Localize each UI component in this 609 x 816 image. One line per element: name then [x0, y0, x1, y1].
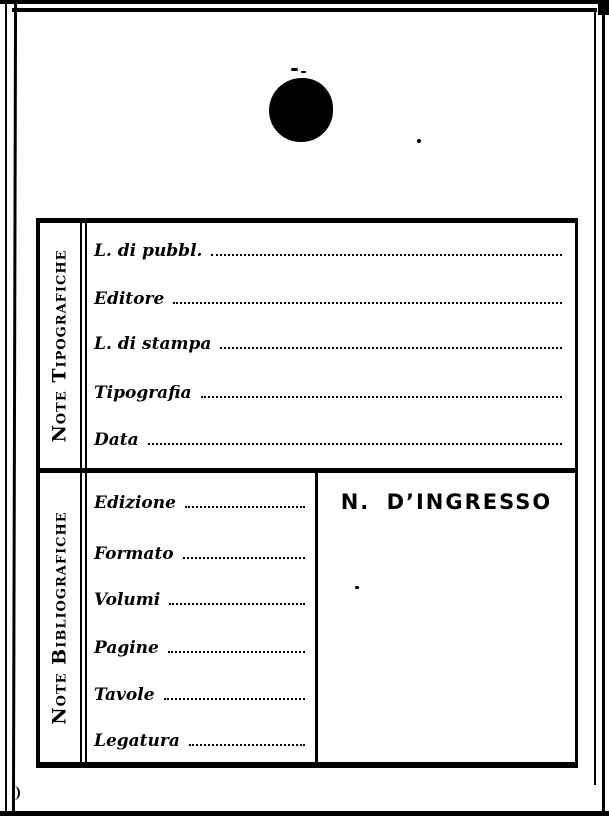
ink-speck — [291, 68, 298, 71]
field-row: Tavole — [94, 685, 305, 705]
field-label: Tavole — [94, 685, 155, 705]
ingresso-column-rule — [315, 473, 318, 762]
page-right-outer-line — [602, 0, 605, 816]
field-label: Legatura — [94, 731, 180, 751]
page-inner-top-border — [12, 8, 597, 12]
section-divider-rule — [36, 468, 578, 473]
field-row: L. di pubbl. — [94, 241, 562, 261]
label-strip-double-rule — [80, 223, 82, 762]
field-label: Pagine — [94, 638, 159, 658]
fill-in-line — [201, 396, 562, 398]
card-top-border — [36, 218, 578, 223]
fill-in-line — [211, 254, 562, 256]
field-row: Formato — [94, 544, 305, 564]
page-left-outer-line — [5, 0, 7, 816]
fill-in-line — [148, 443, 562, 445]
field-row: L. di stampa — [94, 334, 562, 354]
fill-in-line — [220, 347, 562, 349]
section-title-note-bibliografiche: Note Bibliografiche — [40, 473, 80, 762]
field-label: L. di stampa — [94, 334, 211, 354]
ingresso-header: N. D’INGRESSO — [318, 490, 575, 514]
fill-in-line — [189, 744, 305, 746]
page-bottom-edge-line — [0, 811, 609, 816]
field-row: Editore — [94, 289, 562, 309]
field-row: Legatura — [94, 731, 305, 751]
card-bottom-border — [36, 762, 578, 768]
fill-in-line — [164, 698, 305, 700]
ink-speck — [301, 71, 306, 73]
section-title-vertical-text: Note Tipografiche — [49, 249, 71, 442]
field-label: L. di pubbl. — [94, 241, 202, 261]
field-row: Volumi — [94, 590, 305, 610]
page-right-inner-line — [594, 9, 596, 785]
field-row: Tipografia — [94, 383, 562, 403]
label-strip-double-rule — [85, 223, 87, 762]
scanned-catalog-card-page: Note Tipografiche L. di pubbl. Editore L… — [0, 0, 609, 816]
fill-in-line — [173, 302, 562, 304]
field-label: Editore — [94, 289, 164, 309]
punch-hole — [269, 78, 333, 142]
edge-ink-mark — [14, 786, 20, 800]
field-label: Data — [94, 430, 139, 450]
field-row: Edizione — [94, 493, 305, 513]
page-top-edge-line — [0, 0, 609, 4]
fill-in-line — [168, 651, 305, 653]
field-row: Pagine — [94, 638, 305, 658]
catalog-card-table: Note Tipografiche L. di pubbl. Editore L… — [36, 218, 578, 768]
fill-in-line — [169, 603, 305, 605]
corner-ink-blob — [598, 0, 609, 15]
field-label: Volumi — [94, 590, 160, 610]
field-label: Tipografia — [94, 383, 192, 403]
ink-speck — [355, 586, 359, 589]
field-label: Formato — [94, 544, 174, 564]
card-right-border — [575, 218, 578, 768]
fill-in-line — [185, 506, 305, 508]
ink-speck — [417, 139, 421, 143]
section-title-note-tipografiche: Note Tipografiche — [40, 223, 80, 468]
field-row: Data — [94, 430, 562, 450]
field-label: Edizione — [94, 493, 176, 513]
page-left-inner-line — [12, 3, 17, 816]
fill-in-line — [183, 557, 305, 559]
section-title-vertical-text: Note Bibliografiche — [49, 511, 71, 724]
